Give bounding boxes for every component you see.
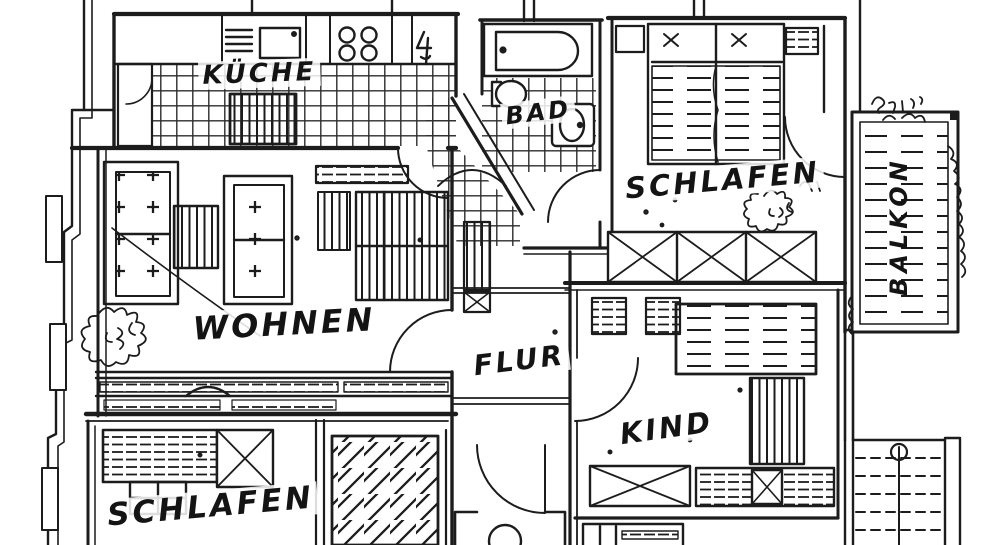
- sideboard-top: [316, 166, 408, 183]
- hall-door-arc: [477, 445, 545, 513]
- room-label-kueche: KÜCHE: [198, 58, 321, 90]
- stove-icon: [340, 28, 377, 61]
- cabinet-bottom: [696, 468, 834, 506]
- wardrobe-x-box: [217, 430, 273, 487]
- coffee-table: [174, 206, 218, 268]
- wall-unit-icon: [318, 192, 448, 300]
- double-bed-icon: [648, 24, 784, 164]
- wardrobe-x-icon: [608, 232, 816, 282]
- child-room-door-arc: [575, 358, 638, 421]
- radiator-icon: [464, 222, 490, 290]
- shelf-small-1: [592, 298, 626, 334]
- staircase: [845, 438, 960, 545]
- hallway: [452, 222, 577, 545]
- wc-symbol-icon: [489, 525, 521, 545]
- sofa-left-icon: [104, 162, 178, 304]
- kitchen-table: [230, 94, 296, 144]
- bed-diagonal-icon: [332, 436, 438, 545]
- bedroom-top: [608, 18, 845, 282]
- child-bed-icon: [676, 304, 816, 374]
- floor-plan: KÜCHE BAD SCHLAFEN BALKON WOHNEN FLUR KI…: [0, 0, 1000, 545]
- bath-door-arc: [548, 170, 600, 222]
- small-x-box: [464, 292, 490, 312]
- plant-icon: [81, 308, 145, 366]
- child-room: [565, 283, 845, 518]
- bed-x-icon: [590, 466, 690, 506]
- bathtub-icon: [484, 24, 592, 76]
- window-band: [86, 372, 456, 421]
- desk-icon: [750, 378, 804, 464]
- nightstand-right: [786, 28, 818, 54]
- utility-box: [583, 524, 683, 545]
- sofa-right-icon: [224, 176, 292, 304]
- nightstand-left: [616, 26, 644, 52]
- floor-plan-drawing: [0, 0, 1000, 545]
- boiler-glyph: [417, 32, 431, 64]
- living-room-door-arc: [390, 310, 452, 372]
- kitchen-sink-icon: [226, 28, 300, 58]
- room-label-balkon: BALKON: [886, 152, 912, 300]
- room-label-wohnen: WOHNEN: [188, 302, 380, 346]
